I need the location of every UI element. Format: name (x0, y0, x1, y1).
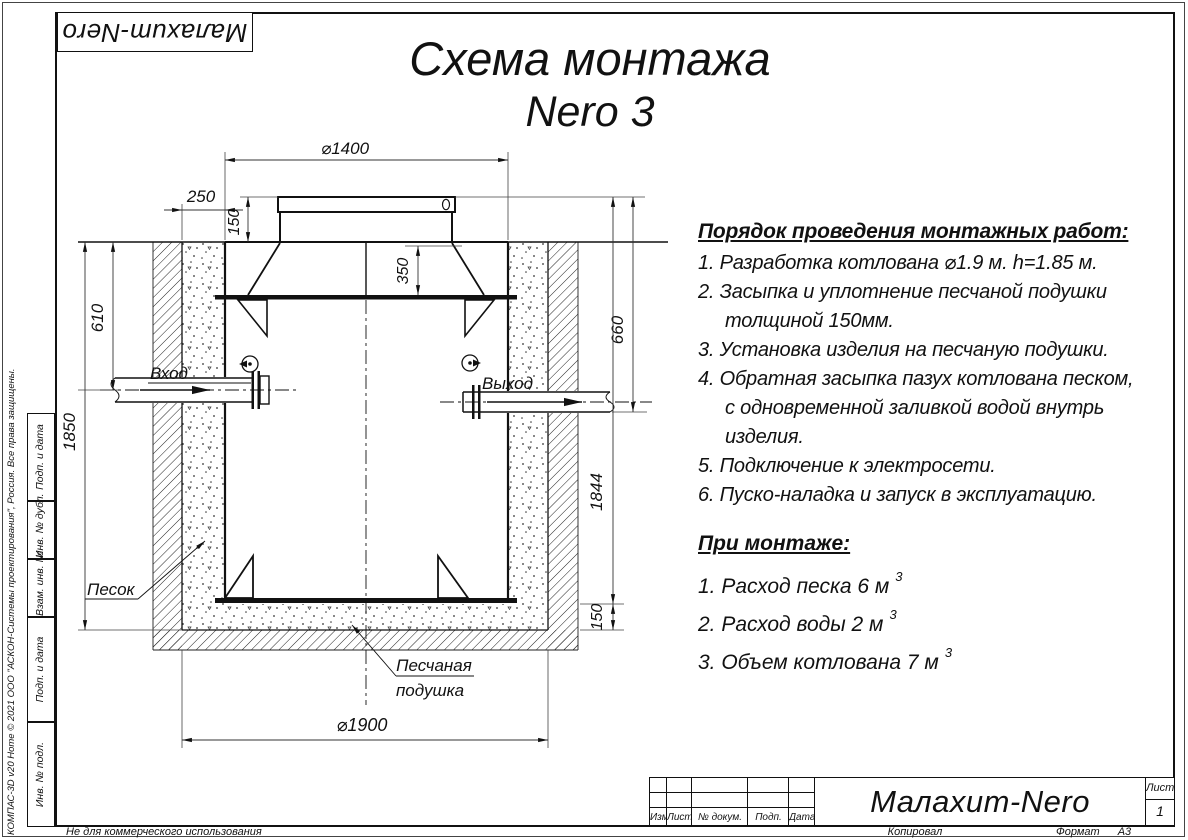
dim-inlet-depth: 610 (88, 303, 107, 332)
dim-tank-height: 1844 (587, 473, 606, 511)
dim-lid-height: 150 (226, 209, 243, 236)
instruction-line: изделия. (698, 423, 1180, 452)
format-value: А3 (1118, 826, 1131, 838)
stamp-cell: Инв. № подл. (27, 722, 55, 827)
sheet-cell: Лист 1 (1145, 778, 1174, 825)
title-line1: Схема монтажа (310, 30, 870, 88)
non-commercial-note: Не для коммерческого использования (66, 826, 262, 838)
dim-pit-depth: 1850 (60, 413, 79, 451)
montage-item: 2. Расход воды 2 м3 (698, 600, 1180, 638)
dim-edge-offset: 250 (186, 187, 216, 206)
anchor-flange (215, 295, 517, 300)
instructions-heading: Порядок проведения монтажных работ: (698, 218, 1180, 246)
instruction-line: 2. Засыпка и уплотнение песчаной подушки (698, 278, 1180, 307)
sheet-label: Лист (1146, 778, 1174, 800)
title-block-row-line (650, 792, 815, 793)
bottom-gussets (225, 556, 468, 598)
tank-neck (280, 212, 452, 242)
title-block-row-line (650, 807, 815, 808)
instruction-line: 3. Установка изделия на песчаную подушки… (698, 336, 1180, 365)
product-name: Малахит-Nero (815, 778, 1145, 825)
title-block: Изм. Лист № докум. Подп. Дата Малахит-Ne… (649, 777, 1175, 826)
title-block-headers: Изм. Лист № докум. Подп. Дата (650, 810, 815, 825)
sand-label: Песок (87, 580, 136, 599)
cushion-label-line2: подушка (396, 681, 464, 700)
dim-lid-diameter: ⌀1400 (321, 139, 370, 158)
copied-by-label: Копировал (855, 826, 975, 838)
instructions-list: 1. Разработка котлована ⌀1.9 м. h=1.85 м… (698, 249, 1180, 510)
stamp-cell-label: Взам. инв. № (28, 560, 53, 616)
dim-shoulder-depth: 350 (395, 258, 412, 285)
instruction-line: 1. Разработка котлована ⌀1.9 м. h=1.85 м… (698, 249, 1180, 278)
inlet-label: Вход (150, 364, 188, 383)
montage-item-text: 2. Расход воды 2 м (698, 613, 883, 636)
compas-credit-text: КОМПАС-3D v20 Home © 2021 ООО "АСКОН-Сис… (4, 383, 20, 835)
stamp-cell-label: Подп. и дата (28, 414, 53, 500)
cubic-superscript: 3 (895, 569, 902, 584)
ground-hatch-left (153, 242, 182, 650)
column-header: Подп. (748, 810, 789, 825)
instruction-line: толщиной 150мм. (698, 307, 1180, 336)
montage-item: 1. Расход песка 6 м3 (698, 562, 1180, 600)
montage-consumption: При монтаже: 1. Расход песка 6 м3 2. Рас… (698, 530, 1180, 676)
stamp-cell: Подп. и дата (27, 413, 55, 501)
outlet-label: Выход (482, 374, 533, 393)
outlet-port-dot (468, 361, 472, 365)
cushion-label-line1: Песчаная (396, 656, 472, 675)
column-header: Изм. (650, 810, 667, 825)
stamp-cell-label: Инв. № дубл. (28, 502, 53, 558)
montage-item-text: 3. Объем котлована 7 м (698, 651, 939, 674)
cubic-superscript: 3 (889, 607, 896, 622)
installation-instructions: Порядок проведения монтажных работ: 1. Р… (698, 218, 1180, 510)
montage-item: 3. Объем котлована 7 м3 (698, 638, 1180, 676)
instruction-line: 6. Пуско-наладка и запуск в эксплуатацию… (698, 481, 1180, 510)
instruction-line: 5. Подключение к электросети. (698, 452, 1180, 481)
montage-heading: При монтаже: (698, 530, 1180, 558)
stamp-cell-label: Инв. № подл. (28, 723, 53, 826)
stamp-cell-label: Подп. и дата (28, 618, 53, 721)
instruction-line: с одновременной заливкой водой внутрь (698, 394, 1180, 423)
dim-outlet-depth: 660 (608, 315, 627, 344)
format-label: Формат (1056, 826, 1100, 838)
inlet-port-dot (248, 362, 252, 366)
excavation-pit (78, 242, 668, 650)
montage-item-text: 1. Расход песка 6 м (698, 575, 889, 598)
column-header: Лист (667, 810, 692, 825)
dim-pit-diameter: ⌀1900 (337, 715, 388, 735)
sheet-number: 1 (1146, 800, 1174, 823)
ground-hatch-right (548, 242, 578, 650)
tank-lid (278, 197, 455, 212)
cubic-superscript: 3 (945, 645, 952, 660)
page-title: Схема монтажа Nero 3 (310, 30, 870, 136)
column-header: Дата (789, 810, 815, 825)
montage-list: 1. Расход песка 6 м3 2. Расход воды 2 м3… (698, 562, 1180, 676)
stamp-cell: Подп. и дата (27, 617, 55, 722)
logo-box: Малахит-Nero (57, 12, 253, 52)
stamp-cell: Взам. инв. № (27, 559, 55, 617)
logo-text: Малахит-Nero (62, 17, 247, 48)
column-header: № докум. (692, 810, 748, 825)
installation-drawing: Вход Выход ⌀1400 250 150 350 610 (55, 125, 700, 785)
compas-credit: КОМПАС-3D v20 Home © 2021 ООО "АСКОН-Сис… (4, 383, 20, 835)
format-note: Формат А3 (1056, 826, 1166, 838)
instruction-line: 4. Обратная засыпка пазух котлована песк… (698, 365, 1180, 394)
dim-cushion-thickness: 150 (589, 604, 606, 631)
